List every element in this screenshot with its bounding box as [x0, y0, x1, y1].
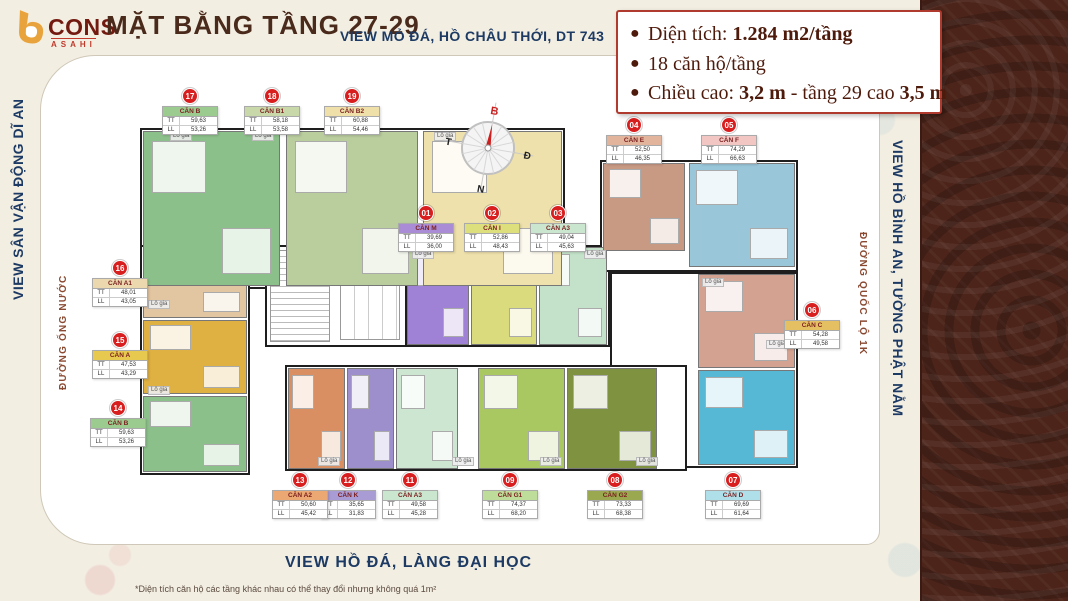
room-shape: [573, 375, 608, 409]
unit-area-table: CĂN A3TT49,04LL45,63: [530, 223, 586, 252]
room-shape: [401, 375, 425, 409]
unit-name: CĂN I: [465, 224, 519, 234]
apartment-unit-07: [698, 370, 795, 465]
unit-tt-row: TT47,53: [93, 361, 147, 370]
unit-ll-row: LL54,46: [325, 126, 379, 134]
balcony-label: Lô gia: [636, 457, 658, 466]
room-shape: [203, 292, 240, 312]
unit-number-badge: 12: [340, 472, 356, 488]
unit-area-table: CĂN BTT59,63LL53,26: [90, 418, 146, 447]
left-view-label: VIEW SÂN VẬN ĐỘNG DĨ AN: [10, 98, 26, 300]
unit-name: CĂN G2: [588, 491, 642, 501]
unit-label-01: 01CĂN MTT39,69LL36,00: [398, 205, 454, 252]
room-shape: [696, 170, 738, 205]
unit-ll-row: LL43,29: [93, 370, 147, 378]
unit-name: CĂN G1: [483, 491, 537, 501]
apartment-unit-09: [478, 368, 565, 469]
unit-label-05: 05CĂN FTT74,29LL66,63: [701, 117, 757, 164]
apartment-unit-06: [698, 274, 795, 368]
unit-ll-row: LL45,63: [531, 243, 585, 251]
unit-number-badge: 16: [112, 260, 128, 276]
room-shape: [150, 325, 191, 349]
room-shape: [705, 377, 743, 409]
room-shape: [222, 228, 271, 274]
top-view-label: VIEW MỎ ĐÁ, HỒ CHÂU THỚI, DT 743: [340, 28, 604, 44]
bullet-icon: ●: [630, 81, 648, 105]
unit-number-badge: 19: [344, 88, 360, 104]
room-shape: [509, 308, 532, 337]
footnote: *Diện tích căn hộ các tầng khác nhau có …: [135, 584, 436, 594]
info-line-units: ●18 căn hộ/tầng: [630, 50, 930, 80]
unit-label-17: 17CĂN BTT59,63LL53,26: [162, 88, 218, 135]
unit-area-table: CĂN A2TT50,60LL45,42: [272, 490, 328, 519]
unit-ll-row: LL45,28: [383, 510, 437, 518]
bcons-asahi-logo: CONS ASAHI: [14, 6, 110, 52]
unit-tt-row: TT60,88: [325, 117, 379, 126]
unit-ll-row: LL53,26: [163, 126, 217, 134]
unit-label-08: 08CĂN G2TT73,33LL68,38: [587, 472, 643, 519]
unit-name: CĂN E: [607, 136, 661, 146]
room-shape: [754, 430, 788, 458]
unit-tt-row: TT48,01: [93, 289, 147, 298]
unit-label-11: 11CĂN A3TT49,58LL45,28: [382, 472, 438, 519]
apartment-unit-04: [603, 163, 685, 251]
room-shape: [484, 375, 518, 409]
unit-area-table: CĂN FTT74,29LL66,63: [701, 135, 757, 164]
apartment-unit-12: [347, 368, 394, 469]
balcony-label: Lô gia: [702, 278, 724, 287]
info-line-area: ●Diện tích: 1.284 m2/tầng: [630, 20, 930, 50]
unit-number-badge: 11: [402, 472, 418, 488]
unit-tt-row: TT69,69: [706, 501, 760, 510]
unit-label-12: 12CĂN KTT35,65LL31,83: [320, 472, 376, 519]
unit-number-badge: 03: [550, 205, 566, 221]
room-shape: [443, 308, 465, 337]
bottom-view-label: VIEW HỒ ĐÁ, LÀNG ĐẠI HỌC: [285, 554, 532, 572]
room-shape: [609, 169, 641, 198]
svg-text:N: N: [476, 184, 485, 196]
unit-ll-row: LL31,83: [321, 510, 375, 518]
unit-tt-row: TT59,63: [163, 117, 217, 126]
unit-label-13: 13CĂN A2TT50,60LL45,42: [272, 472, 328, 519]
unit-area-table: CĂN BTT59,63LL53,26: [162, 106, 218, 135]
apartment-unit-11: [396, 368, 458, 469]
unit-tt-row: TT49,04: [531, 234, 585, 243]
unit-area-table: CĂN G2TT73,33LL68,38: [587, 490, 643, 519]
room-shape: [150, 401, 191, 426]
unit-number-badge: 18: [264, 88, 280, 104]
unit-tt-row: TT39,69: [399, 234, 453, 243]
apartment-unit-14: [143, 396, 247, 472]
unit-ll-row: LL43,05: [93, 298, 147, 306]
apartment-unit-17: [143, 131, 280, 286]
unit-ll-row: LL45,42: [273, 510, 327, 518]
room-shape: [203, 444, 240, 466]
unit-number-badge: 15: [112, 332, 128, 348]
unit-number-badge: 13: [292, 472, 308, 488]
left-road-label: ĐƯỜNG ỐNG NƯỚC: [58, 275, 69, 390]
unit-area-table: CĂN ITT52,86LL48,43: [464, 223, 520, 252]
unit-tt-row: TT54,28: [785, 331, 839, 340]
right-view-label: VIEW HỒ BÌNH AN, TƯỜNG PHẬT NẰM: [890, 140, 906, 417]
apartment-unit-15: [143, 320, 247, 394]
unit-label-16: 16CĂN A1TT48,01LL43,05: [92, 260, 148, 307]
room-shape: [295, 141, 347, 193]
unit-name: CĂN A: [93, 351, 147, 361]
room-shape: [292, 375, 314, 409]
room-shape: [203, 366, 240, 388]
apartment-unit-13: [288, 368, 345, 469]
unit-area-table: CĂN DTT69,69LL61,64: [705, 490, 761, 519]
room-shape: [374, 431, 390, 461]
svg-text:T: T: [444, 137, 452, 149]
unit-label-14: 14CĂN BTT59,63LL53,26: [90, 400, 146, 447]
unit-tt-row: TT74,29: [702, 146, 756, 155]
unit-ll-row: LL68,20: [483, 510, 537, 518]
unit-ll-row: LL68,38: [588, 510, 642, 518]
unit-area-table: CĂN A3TT49,58LL45,28: [382, 490, 438, 519]
unit-number-badge: 04: [626, 117, 642, 133]
unit-number-badge: 02: [484, 205, 500, 221]
unit-name: CĂN C: [785, 321, 839, 331]
unit-area-table: CĂN ATT47,53LL43,29: [92, 350, 148, 379]
bullet-icon: ●: [630, 22, 648, 46]
apartment-unit-08: [567, 368, 657, 469]
unit-area-table: CĂN KTT35,65LL31,83: [320, 490, 376, 519]
unit-name: CĂN A3: [383, 491, 437, 501]
unit-label-02: 02CĂN ITT52,86LL48,43: [464, 205, 520, 252]
apartment-unit-05: [689, 163, 795, 267]
unit-ll-row: LL66,63: [702, 155, 756, 163]
unit-name: CĂN B: [91, 419, 145, 429]
unit-name: CĂN M: [399, 224, 453, 234]
unit-area-table: CĂN ETT52,50LL46,35: [606, 135, 662, 164]
bcons-b-icon: [14, 8, 48, 48]
logo-asahi-text: ASAHI: [51, 38, 96, 49]
unit-ll-row: LL36,00: [399, 243, 453, 251]
unit-label-19: 19CĂN B2TT60,88LL54,46: [324, 88, 380, 135]
info-line-height: ●Chiều cao: 3,2 m - tầng 29 cao 3,5 m: [630, 79, 930, 109]
unit-tt-row: TT52,50: [607, 146, 661, 155]
bullet-icon: ●: [630, 52, 648, 76]
unit-label-18: 18CĂN B1TT58,18LL53,58: [244, 88, 300, 135]
unit-tt-row: TT49,58: [383, 501, 437, 510]
unit-label-15: 15CĂN ATT47,53LL43,29: [92, 332, 148, 379]
unit-tt-row: TT74,37: [483, 501, 537, 510]
room-shape: [578, 308, 602, 337]
slide-canvas: CONS ASAHI MẶT BẰNG TẦNG 27-29 VIEW MỎ Đ…: [0, 0, 1068, 601]
unit-area-table: CĂN B2TT60,88LL54,46: [324, 106, 380, 135]
unit-name: CĂN A1: [93, 279, 147, 289]
svg-text:Đ: Đ: [523, 150, 532, 162]
unit-name: CĂN K: [321, 491, 375, 501]
unit-number-badge: 08: [607, 472, 623, 488]
balcony-label: Lô gia: [148, 300, 170, 309]
unit-number-badge: 05: [721, 117, 737, 133]
unit-tt-row: TT35,65: [321, 501, 375, 510]
unit-ll-row: LL46,35: [607, 155, 661, 163]
unit-label-07: 07CĂN DTT69,69LL61,64: [705, 472, 761, 519]
balcony-label: Lô gia: [540, 457, 562, 466]
unit-number-badge: 09: [502, 472, 518, 488]
unit-tt-row: TT59,63: [91, 429, 145, 438]
room-shape: [351, 375, 369, 409]
unit-label-06: 06CĂN CTT54,28LL49,58: [784, 302, 840, 349]
unit-name: CĂN D: [706, 491, 760, 501]
room-shape: [432, 431, 454, 461]
room-shape: [750, 228, 787, 259]
unit-label-09: 09CĂN G1TT74,37LL68,20: [482, 472, 538, 519]
unit-ll-row: LL61,64: [706, 510, 760, 518]
unit-area-table: CĂN CTT54,28LL49,58: [784, 320, 840, 349]
compass-icon: B Đ T N: [438, 98, 538, 198]
unit-name: CĂN B: [163, 107, 217, 117]
unit-name: CĂN A2: [273, 491, 327, 501]
unit-tt-row: TT58,18: [245, 117, 299, 126]
balcony-label: Lô gia: [452, 457, 474, 466]
balcony-label: Lô gia: [148, 386, 170, 395]
info-box: ●Diện tích: 1.284 m2/tầng ●18 căn hộ/tần…: [616, 10, 942, 114]
unit-name: CĂN B1: [245, 107, 299, 117]
unit-area-table: CĂN A1TT48,01LL43,05: [92, 278, 148, 307]
unit-ll-row: LL49,58: [785, 340, 839, 348]
unit-tt-row: TT73,33: [588, 501, 642, 510]
balcony-label: Lô gia: [584, 250, 606, 259]
unit-area-table: CĂN MTT39,69LL36,00: [398, 223, 454, 252]
unit-area-table: CĂN B1TT58,18LL53,58: [244, 106, 300, 135]
unit-number-badge: 06: [804, 302, 820, 318]
unit-name: CĂN F: [702, 136, 756, 146]
unit-tt-row: TT52,86: [465, 234, 519, 243]
balcony-label: Lô gia: [318, 457, 340, 466]
unit-name: CĂN B2: [325, 107, 379, 117]
unit-label-03: 03CĂN A3TT49,04LL45,63: [530, 205, 586, 252]
unit-number-badge: 17: [182, 88, 198, 104]
unit-ll-row: LL53,26: [91, 438, 145, 446]
right-road-label: ĐƯỜNG QUỐC LỘ 1K: [857, 232, 868, 355]
unit-number-badge: 14: [110, 400, 126, 416]
unit-number-badge: 07: [725, 472, 741, 488]
unit-name: CĂN A3: [531, 224, 585, 234]
room-shape: [152, 141, 206, 193]
unit-ll-row: LL53,58: [245, 126, 299, 134]
unit-label-04: 04CĂN ETT52,50LL46,35: [606, 117, 662, 164]
unit-tt-row: TT50,60: [273, 501, 327, 510]
room-shape: [650, 218, 679, 244]
unit-area-table: CĂN G1TT74,37LL68,20: [482, 490, 538, 519]
unit-ll-row: LL48,43: [465, 243, 519, 251]
svg-text:B: B: [489, 105, 499, 118]
unit-number-badge: 01: [418, 205, 434, 221]
